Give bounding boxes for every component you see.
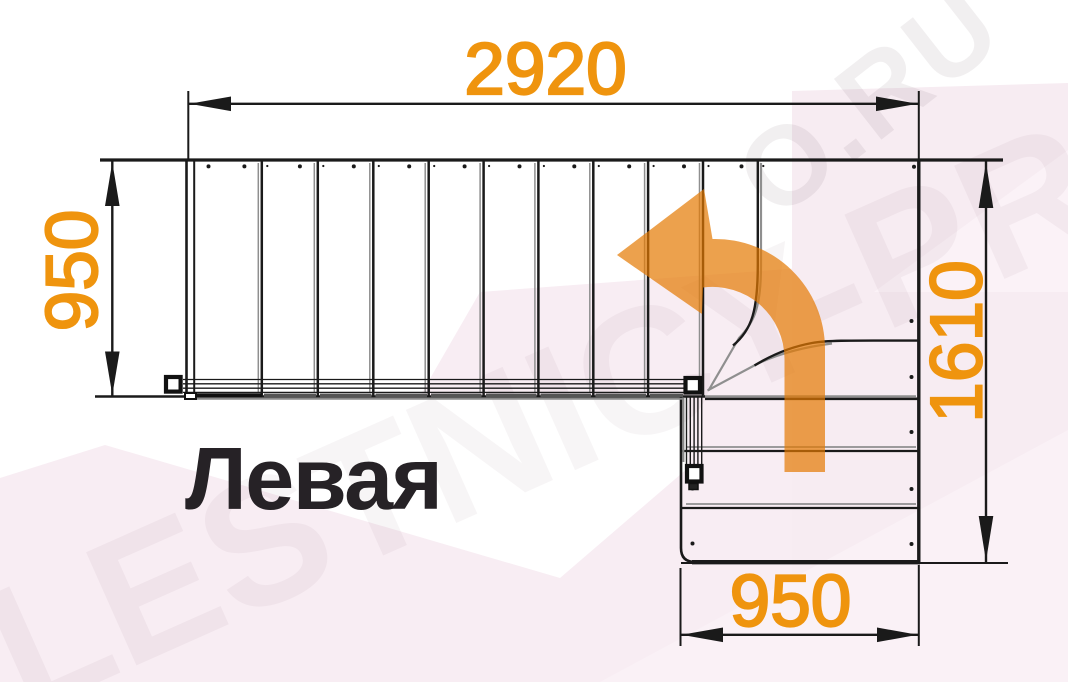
svg-text:950: 950 [730,561,852,642]
svg-text:2920: 2920 [464,29,626,110]
svg-text:Левая: Левая [185,429,441,528]
svg-text:950: 950 [32,210,113,332]
svg-text:1610: 1610 [917,260,998,422]
